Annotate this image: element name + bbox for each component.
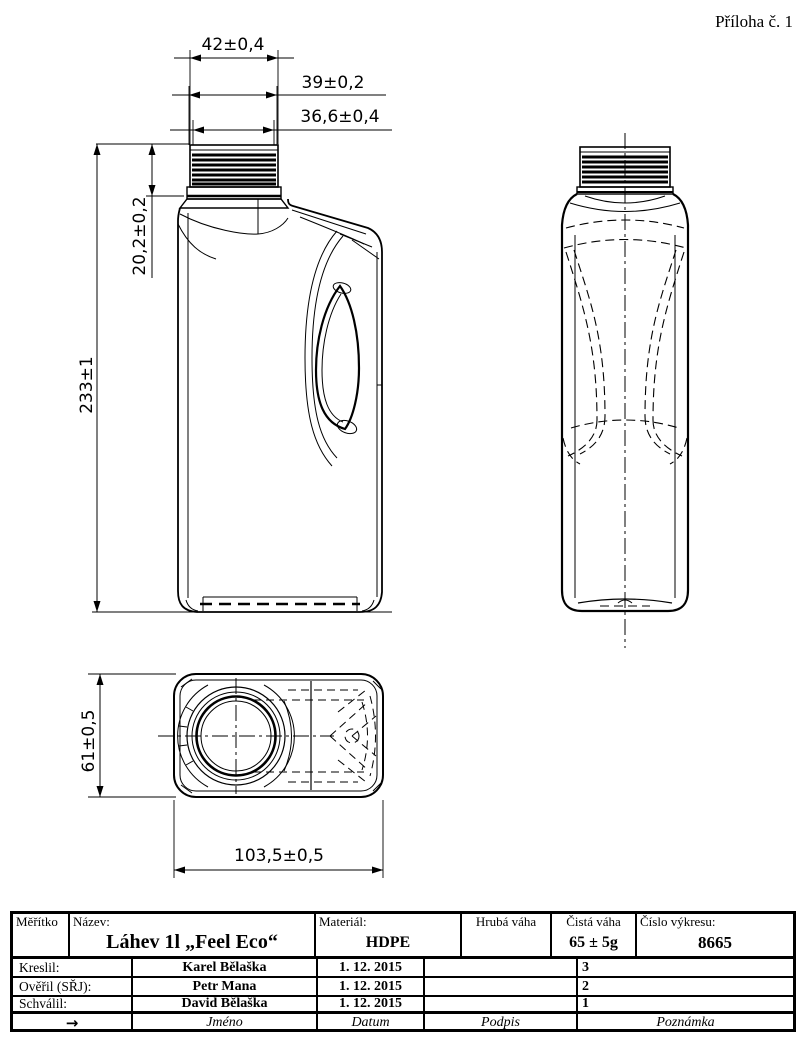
row-signature <box>425 978 578 995</box>
row-name: Karel Bělaška <box>133 959 318 976</box>
dim-neck-height: 20,2±0,2 <box>130 196 150 275</box>
drawing-number-cell: Číslo výkresu: 8665 <box>637 914 793 956</box>
row-date: 1. 12. 2015 <box>318 997 425 1011</box>
front-view <box>178 145 382 612</box>
footer-name-col: Jméno <box>133 1014 318 1032</box>
net-weight-label: Čistá váha <box>552 914 635 929</box>
dim-cap-outer: 42±0,4 <box>202 35 265 55</box>
row-name: Petr Mana <box>133 978 318 995</box>
name-cell: Název: Láhev 1l „Feel Eco“ <box>70 914 316 956</box>
arrow-icon: → <box>13 1014 133 1032</box>
title-block: Měřítko Název: Láhev 1l „Feel Eco“ Mater… <box>10 911 796 1032</box>
row-name: David Bělaška <box>133 997 318 1011</box>
table-row: Schválil: David Bělaška 1. 12. 2015 1 <box>13 997 793 1014</box>
table-row: Kreslil: Karel Bělaška 1. 12. 2015 3 <box>13 959 793 978</box>
table-footer-row: → Jméno Datum Podpis Poznámka <box>13 1014 793 1032</box>
name-label: Název: <box>70 914 314 929</box>
side-view <box>562 133 688 648</box>
dim-total-height: 233±1 <box>77 356 97 414</box>
row-signature <box>425 997 578 1011</box>
net-weight-cell: Čistá váha 65 ± 5g <box>552 914 637 956</box>
top-view <box>158 674 383 797</box>
drawing-sheet: Příloha č. 1 <box>0 0 807 1039</box>
net-weight-value: 65 ± 5g <box>552 929 635 956</box>
row-revision: 2 <box>578 978 793 995</box>
dim-cap-mid: 39±0,2 <box>302 73 365 93</box>
row-role: Schválil: <box>13 997 133 1011</box>
drawing-number-label: Číslo výkresu: <box>637 914 793 929</box>
row-role: Kreslil: <box>13 959 133 976</box>
footer-signature-col: Podpis <box>425 1014 578 1032</box>
scale-cell: Měřítko <box>13 914 70 956</box>
footer-date-col: Datum <box>318 1014 425 1032</box>
title-block-header: Měřítko Název: Láhev 1l „Feel Eco“ Mater… <box>13 914 793 959</box>
material-cell: Materiál: HDPE <box>316 914 462 956</box>
scale-label: Měřítko <box>13 914 68 929</box>
row-date: 1. 12. 2015 <box>318 959 425 976</box>
row-revision: 3 <box>578 959 793 976</box>
material-label: Materiál: <box>316 914 460 929</box>
gross-weight-value <box>462 929 550 956</box>
dim-width: 103,5±0,5 <box>234 846 324 866</box>
dim-thread: 36,6±0,4 <box>300 107 379 127</box>
name-value: Láhev 1l „Feel Eco“ <box>70 929 314 956</box>
gross-weight-label: Hrubá váha <box>462 914 550 929</box>
row-revision: 1 <box>578 997 793 1011</box>
material-value: HDPE <box>316 929 460 956</box>
bottle-drawing: 42±0,4 39±0,2 36,6±0,4 20,2±0,2 233±1 61… <box>0 0 807 905</box>
dim-depth: 61±0,5 <box>79 710 99 773</box>
dimension-arrows <box>94 55 384 874</box>
table-row: Ověřil (SŘJ): Petr Mana 1. 12. 2015 2 <box>13 978 793 997</box>
row-signature <box>425 959 578 976</box>
row-role: Ověřil (SŘJ): <box>13 978 133 995</box>
drawing-number-value: 8665 <box>637 929 793 956</box>
gross-weight-cell: Hrubá váha <box>462 914 552 956</box>
footer-note-col: Poznámka <box>578 1014 793 1032</box>
row-date: 1. 12. 2015 <box>318 978 425 995</box>
